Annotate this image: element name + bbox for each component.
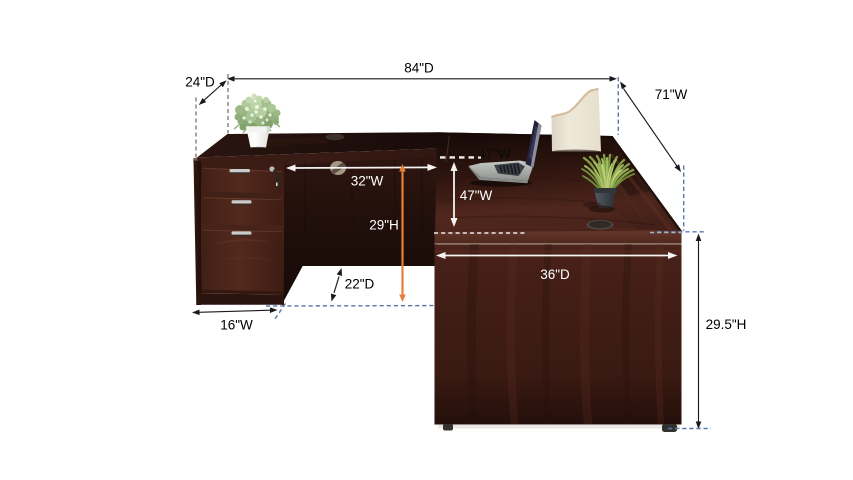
- svg-text:47"W: 47"W: [478, 147, 511, 162]
- svg-text:84"D: 84"D: [404, 61, 434, 76]
- svg-text:47"W: 47"W: [460, 188, 493, 203]
- svg-text:16"W: 16"W: [220, 318, 253, 333]
- svg-text:32"W: 32"W: [351, 174, 384, 189]
- svg-text:22"D: 22"D: [345, 277, 375, 292]
- svg-text:36"D: 36"D: [540, 267, 570, 282]
- svg-text:29.5"H: 29.5"H: [706, 317, 747, 332]
- svg-text:29"H: 29"H: [369, 218, 399, 233]
- svg-text:24"D: 24"D: [185, 75, 215, 90]
- svg-text:71"W: 71"W: [655, 87, 688, 102]
